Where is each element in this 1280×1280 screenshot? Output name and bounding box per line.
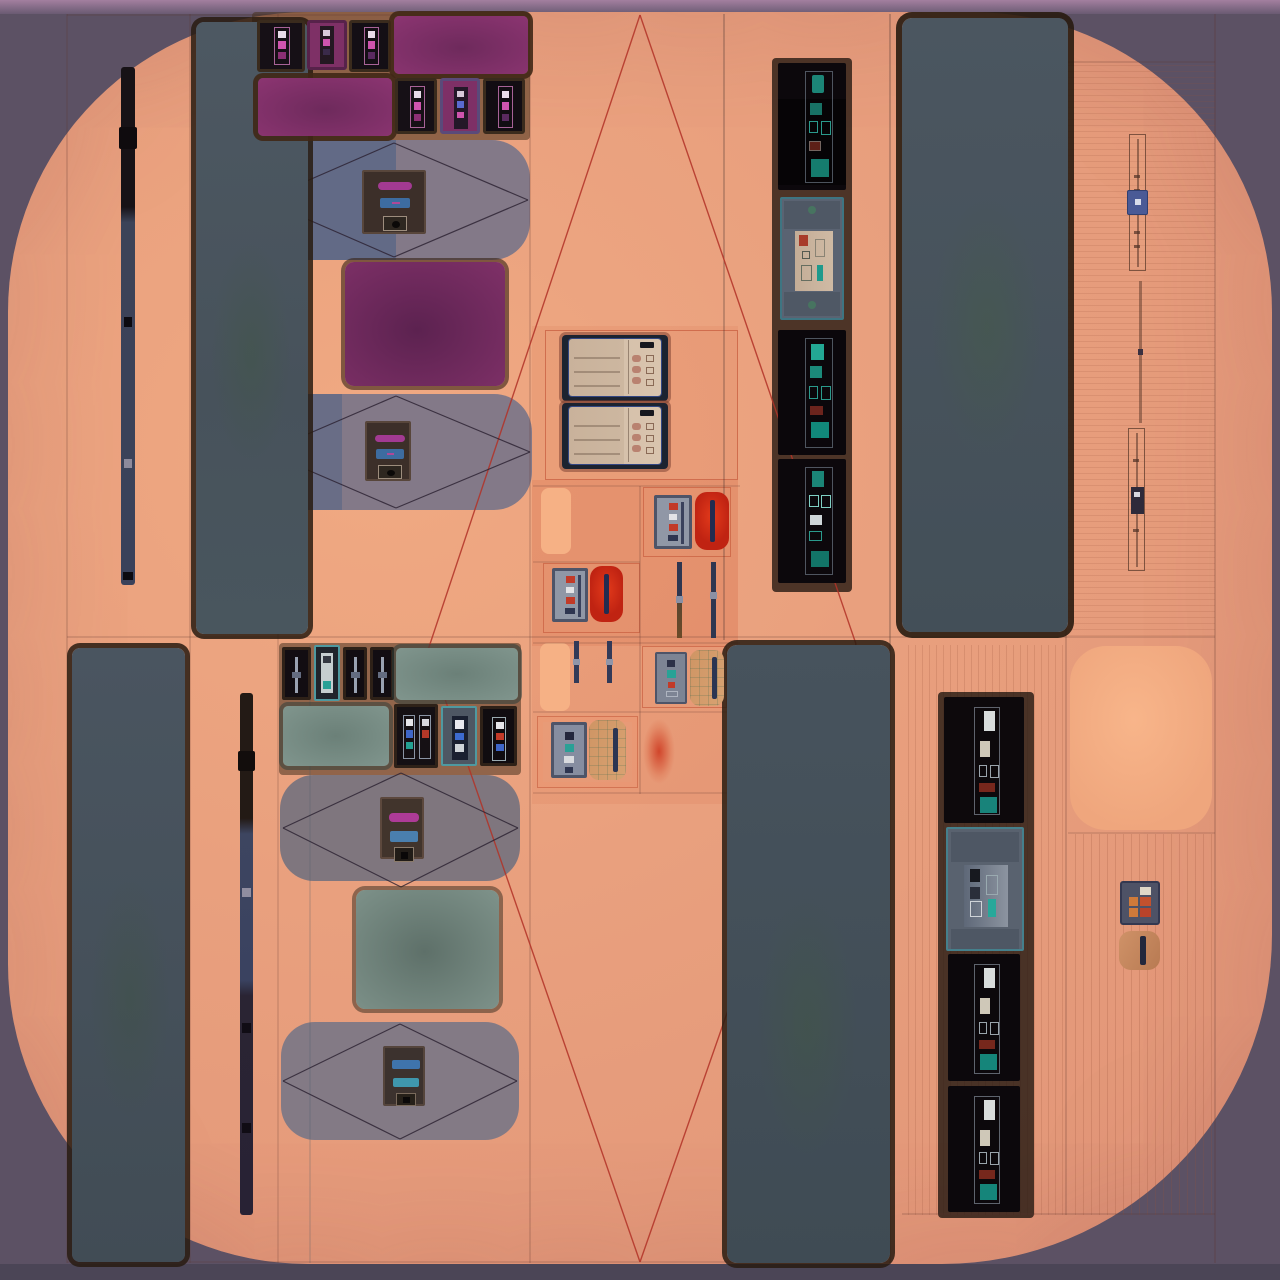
machine-bit-red <box>979 783 995 792</box>
chair-tan <box>690 650 724 706</box>
slab-blotch <box>211 242 291 462</box>
washer-unit <box>562 335 668 401</box>
stand-bit <box>566 597 575 604</box>
machine-bit-outline <box>970 901 982 917</box>
machine-bit-outline <box>821 386 831 400</box>
machine-bit-light <box>980 998 990 1014</box>
machine-bit-dark <box>970 869 980 882</box>
strip-bit <box>457 112 464 118</box>
machine-cap-top <box>951 832 1019 862</box>
strip-bit <box>406 730 413 738</box>
stand-bit <box>668 682 675 688</box>
rug-console <box>362 170 426 234</box>
control-stand <box>552 568 588 622</box>
machine-dot-green <box>808 301 816 309</box>
stand-bit <box>566 576 575 583</box>
machine-bit-red <box>979 1170 995 1179</box>
strip-bit <box>502 114 509 121</box>
panel-dot <box>646 435 654 442</box>
machine-bit-outline <box>821 495 831 508</box>
strip-bit <box>496 733 504 740</box>
gadget-bit <box>1140 908 1151 917</box>
machine-bit-tealblock <box>811 422 829 438</box>
console-pill-blue <box>390 831 418 842</box>
washer-unit <box>562 403 668 469</box>
post-notch <box>606 659 613 665</box>
chair-slot <box>1140 936 1146 965</box>
machine-bit-red <box>979 1040 995 1049</box>
chair-red <box>695 492 729 550</box>
rail-post <box>607 641 612 683</box>
dark-badge <box>1131 487 1144 514</box>
rug-console <box>365 421 411 481</box>
rug-console <box>383 1046 425 1106</box>
machine-bit-outline <box>809 386 818 399</box>
shelf-line <box>574 439 620 441</box>
vending-machine-slate <box>780 197 844 320</box>
locker-box <box>395 78 437 134</box>
stand-bit <box>565 732 574 740</box>
vending-machine-black <box>948 1086 1020 1212</box>
machine-bit-outline <box>979 765 987 777</box>
locker-strip-icon <box>274 27 290 65</box>
panel-dot <box>646 367 654 374</box>
vending-machine-black <box>778 330 846 455</box>
locker-box <box>257 20 305 72</box>
machine-bit-outline <box>990 1152 999 1165</box>
bed-purple-small <box>394 16 528 74</box>
stand-bit <box>565 744 574 752</box>
panel-knob <box>632 366 641 373</box>
strip-bit <box>502 91 509 98</box>
pill-dash <box>387 453 394 455</box>
strip-bit <box>368 52 375 59</box>
slab-blotch <box>932 198 1042 458</box>
panel-divider <box>628 340 629 394</box>
light-floor-patch-b <box>540 643 570 711</box>
red-blur-blob <box>643 719 675 791</box>
fixture-tick <box>1133 459 1139 462</box>
track-knob <box>119 127 137 149</box>
bed-green-small <box>396 648 518 700</box>
machine-bit-outline <box>990 765 999 778</box>
strip-bit <box>323 30 330 36</box>
locker-box <box>349 20 391 72</box>
rug-console <box>380 797 424 859</box>
stand-slot <box>681 502 684 544</box>
strip-bit <box>455 720 464 729</box>
bed-purple-small <box>258 78 392 136</box>
panel-knob <box>632 423 641 430</box>
stand-bit <box>564 756 574 763</box>
gadget-bit <box>1129 908 1138 917</box>
chair-tan <box>589 720 626 780</box>
strip-bit <box>323 681 331 689</box>
vending-machine-black <box>778 459 846 583</box>
shelf-line <box>574 453 620 455</box>
strip-bit <box>278 31 286 38</box>
machine-bit-tealblock <box>811 159 829 177</box>
machine-bit-outline <box>809 531 822 541</box>
strip-bit <box>414 91 421 98</box>
console-pill-blue <box>392 1060 420 1069</box>
slot-notch <box>378 672 387 678</box>
chair-tan-small <box>1119 931 1160 970</box>
machine-bit-tealdash <box>988 899 996 917</box>
console-dot-box <box>383 216 407 231</box>
shelf-line <box>574 425 620 427</box>
stand-slot <box>578 575 581 617</box>
machine-bit-light <box>980 741 990 757</box>
machine-bit-tealdash <box>817 265 823 281</box>
locker-strip-icon <box>321 653 333 693</box>
machine-bit-red <box>799 235 808 246</box>
strip-bit <box>496 722 504 729</box>
double-locker-box <box>394 704 438 768</box>
machine-bit-teal <box>810 366 822 378</box>
machine-bit-teal <box>812 75 824 93</box>
bed-green-small <box>283 706 389 766</box>
strip-bit <box>422 719 429 726</box>
panel-dot <box>646 447 654 454</box>
machine-bit-outline <box>979 1152 987 1164</box>
console-pill-magenta <box>375 435 405 442</box>
purple-locker <box>440 78 480 134</box>
wall-fixture-thin <box>1139 281 1142 423</box>
strip-bit <box>323 39 330 46</box>
shelf-line <box>574 371 620 373</box>
console-dot-box <box>396 1093 416 1106</box>
machine-bit-red <box>810 406 823 415</box>
slot-notch <box>351 672 360 678</box>
machine-bit-tealblock <box>980 797 997 813</box>
rail-post <box>677 562 682 638</box>
badge-dot <box>1135 199 1141 205</box>
stand-bit <box>667 660 675 667</box>
panel-dot <box>646 379 654 386</box>
panel-knob <box>632 445 641 452</box>
strip-bit <box>406 719 413 726</box>
machine-bit-light <box>984 1100 995 1120</box>
machine-bit-tealblock <box>980 1184 997 1200</box>
machine-bit-outline <box>979 1022 987 1034</box>
panel-divider <box>628 408 629 462</box>
fixture-tick <box>1134 245 1140 248</box>
stand-bit <box>668 535 678 541</box>
locker-strip-icon <box>403 715 415 759</box>
pill-dash <box>392 202 400 204</box>
dot <box>387 470 395 476</box>
locker-strip-icon <box>419 715 431 759</box>
machine-bit-outline <box>986 875 998 895</box>
gadget-bit <box>1129 897 1138 906</box>
strip-bit <box>496 744 504 751</box>
stand-bit <box>667 670 676 678</box>
strip-bit <box>406 742 413 749</box>
stand-bit <box>565 767 573 773</box>
locker-strip-icon <box>410 86 425 128</box>
rail-post <box>711 562 716 638</box>
strip-bit <box>278 41 286 49</box>
locker-box <box>483 78 525 134</box>
post-notch <box>710 592 717 599</box>
strip-bit <box>323 49 330 55</box>
teal-frame-box <box>314 645 340 701</box>
vending-machine-black <box>944 697 1024 823</box>
locker-strip-icon <box>454 87 468 129</box>
vending-machine-black <box>778 63 846 190</box>
slate-slab-bottom-left <box>72 648 185 1262</box>
machine-bit-red <box>809 141 821 151</box>
slab-blotch <box>757 895 857 1155</box>
strip-bit <box>414 114 421 121</box>
strip-bit <box>457 91 464 97</box>
strip-bit <box>455 744 464 752</box>
rail-post <box>574 641 579 683</box>
console-pill-magenta <box>378 182 412 190</box>
machine-bit-light <box>984 968 995 988</box>
fixture-dot <box>1138 349 1143 355</box>
track-knob <box>124 317 132 327</box>
bottom-wall-strip <box>0 1264 1280 1280</box>
stand-bit <box>666 691 678 697</box>
wall-track-top-left <box>121 67 135 585</box>
orange-rounded-pad <box>1070 646 1212 830</box>
panel-dot <box>646 423 654 430</box>
panel-dot <box>646 355 654 362</box>
shelf-line <box>574 357 620 359</box>
machine-cap-bottom <box>951 929 1019 949</box>
bed-green-large <box>356 890 499 1009</box>
slab-blotch <box>90 878 170 1118</box>
chair-red <box>590 566 623 622</box>
machine-bit-dark <box>970 887 980 899</box>
vending-machine-black <box>948 954 1020 1081</box>
post-notch <box>676 596 683 603</box>
stand-bit <box>669 514 677 520</box>
gadget-bit <box>1140 887 1151 895</box>
light-floor-patch-a <box>541 488 571 554</box>
control-stand <box>551 722 587 778</box>
machine-bit-tealblock <box>811 551 829 567</box>
machine-bit-outline <box>802 251 810 259</box>
slot-notch <box>292 672 301 678</box>
locker-strip-icon <box>320 26 334 64</box>
machine-bit-light <box>810 515 822 525</box>
fixture-tick <box>1133 529 1139 532</box>
machine-bit-outline <box>809 495 819 507</box>
track-knob <box>242 1023 251 1033</box>
slate-slab-bottom-mid <box>727 645 890 1263</box>
strip-bit <box>278 52 286 59</box>
locker-box <box>480 706 517 766</box>
machine-bit-outline <box>815 239 825 257</box>
console-pill-blue <box>376 449 404 459</box>
strip-bit <box>368 31 375 38</box>
panel-dash <box>640 410 654 416</box>
facility-map <box>0 0 1280 1280</box>
strip-bit <box>323 656 331 663</box>
slot-box <box>343 647 367 700</box>
track-knob <box>123 572 133 580</box>
console-pill-teal <box>393 1078 419 1087</box>
stand-bit <box>565 608 575 614</box>
strip-bit <box>502 102 509 110</box>
panel-dash <box>640 342 654 348</box>
blue-badge <box>1127 190 1148 215</box>
locker-strip-icon <box>452 716 468 760</box>
stand-bit <box>566 587 574 593</box>
console-dot-box <box>378 465 402 479</box>
slot-box <box>282 647 311 700</box>
machine-bit-teal <box>810 103 822 115</box>
machine-bit-outline <box>821 121 831 135</box>
track-knob <box>238 751 255 771</box>
machine-bit-light <box>984 711 995 731</box>
wall-fixture-tall <box>1128 428 1145 571</box>
machine-bit-outline <box>801 265 812 281</box>
wall-track-bottom-left <box>240 693 253 1215</box>
machine-bit-tealblock <box>980 1054 997 1070</box>
badge-dot <box>1134 492 1140 497</box>
control-stand <box>654 495 692 549</box>
locker-strip-icon <box>498 86 513 128</box>
panel-knob <box>632 355 641 362</box>
bed-purple-large <box>345 262 505 386</box>
machine-bit-light <box>980 1130 990 1146</box>
slot-box <box>370 647 394 700</box>
gadget-bit <box>1140 897 1151 906</box>
locker-strip-icon <box>492 717 506 761</box>
chair-slot <box>710 500 715 542</box>
track-knob <box>242 1123 251 1133</box>
strip-bit <box>368 41 375 49</box>
dot <box>403 1097 410 1103</box>
post-notch <box>573 659 580 665</box>
machine-bit-outline <box>809 121 818 133</box>
panel-knob <box>632 377 641 384</box>
strip-bit <box>422 730 429 738</box>
machine-bit-teal <box>812 471 824 487</box>
fixture-tick <box>1134 231 1140 234</box>
locker-strip-icon <box>364 27 379 65</box>
machine-dot-green <box>808 206 816 214</box>
fixture-tick <box>1134 175 1140 178</box>
strip-bit <box>455 733 464 740</box>
purple-locker <box>307 20 347 70</box>
console-pill-magenta <box>389 813 419 822</box>
vending-machine-slate <box>946 827 1024 951</box>
stand-bit <box>669 503 678 510</box>
teal-frame-box <box>441 706 477 766</box>
strip-bit <box>414 102 421 110</box>
dot <box>392 221 400 228</box>
machine-bit-outline <box>990 1022 999 1035</box>
track-knob <box>124 459 132 468</box>
shelf-line <box>574 385 620 387</box>
gadget-panel <box>1120 881 1160 925</box>
dot <box>401 852 408 859</box>
console-pill-blue <box>380 198 410 208</box>
chair-slot <box>712 657 717 699</box>
slate-slab-top-right <box>902 18 1068 632</box>
chair-slot <box>604 574 609 614</box>
panel-knob <box>632 434 641 441</box>
stand-bit <box>669 524 678 531</box>
console-dot-box <box>394 847 414 862</box>
chair-slot <box>613 728 618 772</box>
control-stand <box>655 652 687 704</box>
strip-bit <box>457 101 464 108</box>
machine-bit-teal <box>811 344 824 360</box>
track-knob <box>242 888 251 897</box>
